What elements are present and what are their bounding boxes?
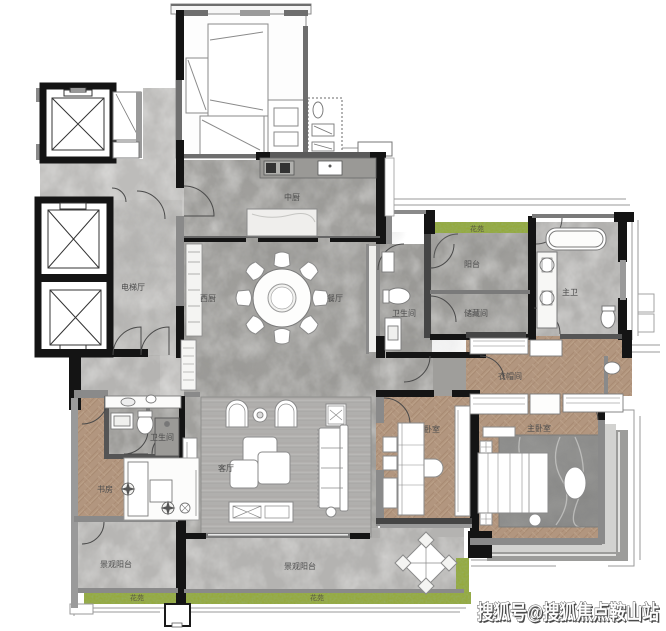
svg-text:电梯厅: 电梯厅 (121, 282, 145, 292)
svg-text:花苑: 花苑 (130, 593, 144, 602)
svg-text:主卫: 主卫 (562, 287, 578, 297)
svg-text:餐厅: 餐厅 (327, 294, 343, 303)
svg-text:西厨: 西厨 (200, 294, 216, 303)
svg-text:客厅: 客厅 (218, 463, 234, 473)
svg-text:衣帽间: 衣帽间 (498, 371, 522, 381)
svg-text:景观阳台: 景观阳台 (100, 559, 132, 569)
svg-text:卫生间: 卫生间 (150, 432, 174, 442)
svg-text:中厨: 中厨 (284, 192, 300, 202)
svg-text:主卧室: 主卧室 (527, 423, 551, 433)
svg-text:书房: 书房 (97, 484, 113, 494)
svg-text:卧室: 卧室 (424, 424, 440, 434)
svg-text:阳台: 阳台 (464, 259, 480, 269)
svg-text:搜狐号@搜狐焦点鞍山站: 搜狐号@搜狐焦点鞍山站 (477, 600, 659, 624)
svg-text:花苑: 花苑 (310, 593, 324, 602)
svg-text:储藏间: 储藏间 (464, 308, 488, 318)
svg-text:景观阳台: 景观阳台 (284, 561, 316, 571)
svg-text:花苑: 花苑 (470, 224, 484, 233)
svg-text:卫生间: 卫生间 (392, 308, 416, 318)
